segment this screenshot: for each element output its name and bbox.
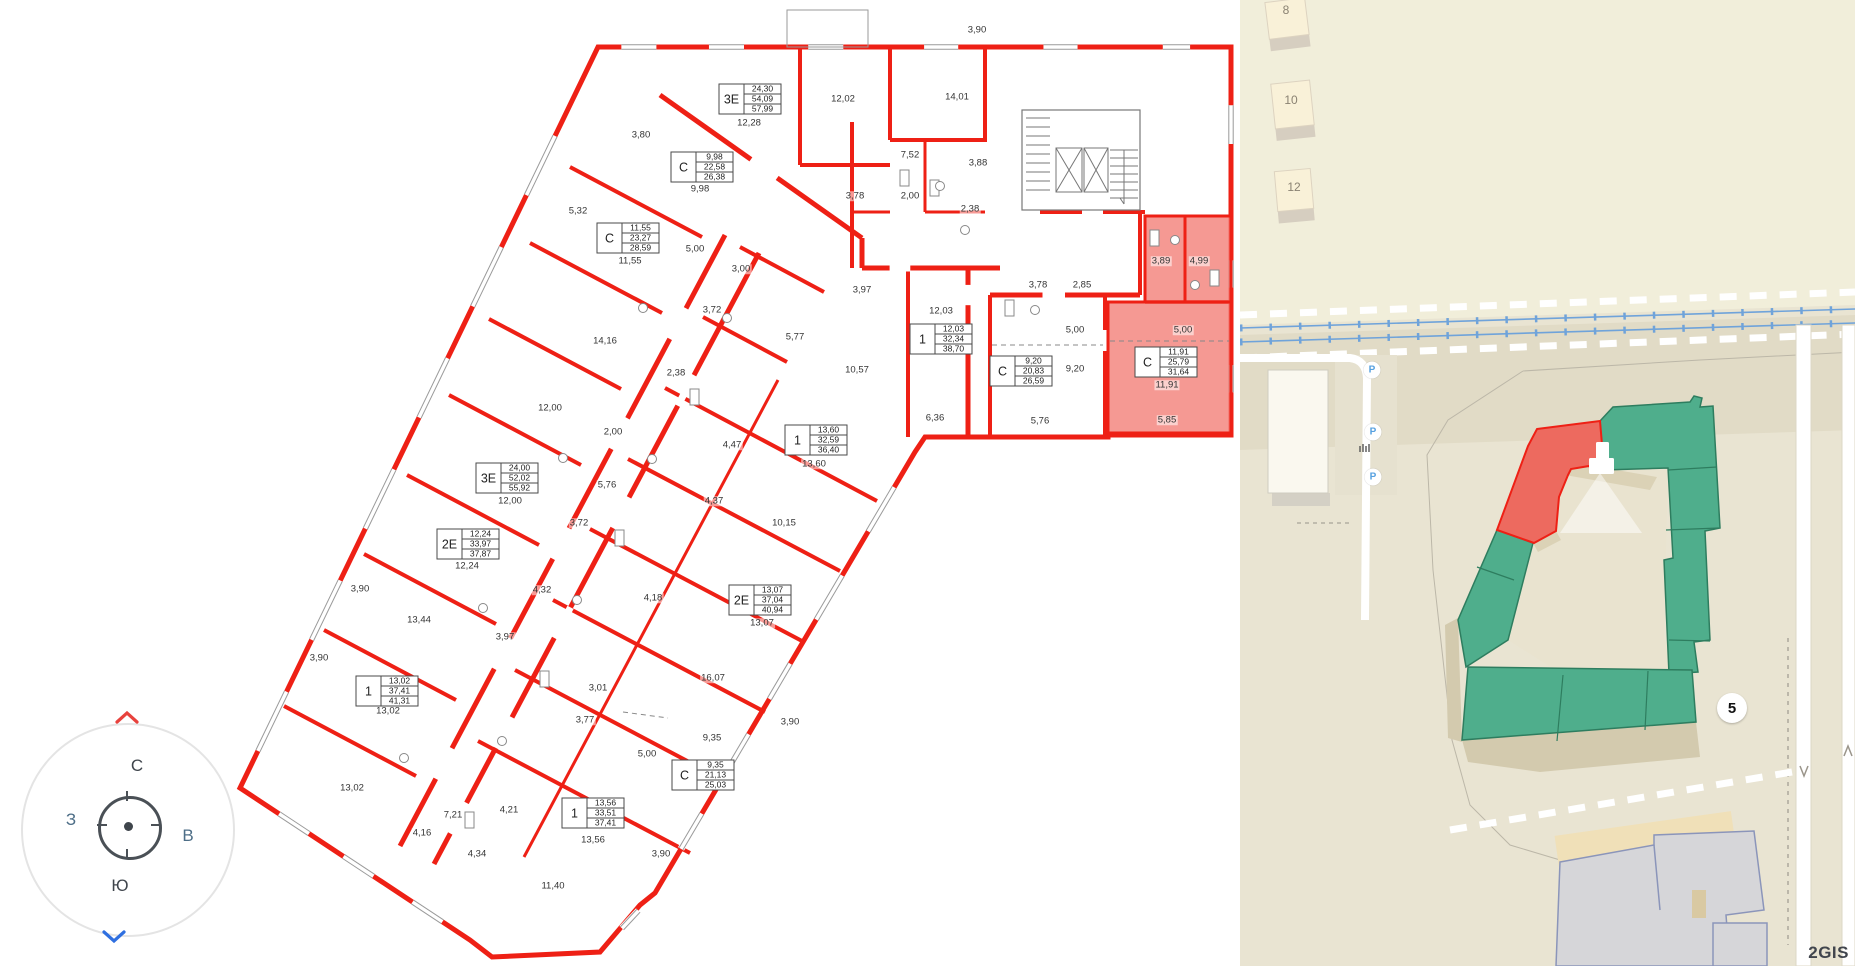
apartment-area-value: 37,41 <box>588 819 624 828</box>
apartment-area-value: 26,59 <box>1016 377 1052 386</box>
apartment-area-value: 31,64 <box>1161 368 1197 377</box>
compass-label-east: В <box>182 826 193 846</box>
compass-label-north: С <box>131 756 143 776</box>
room-dimension-label: 6,36 <box>925 413 946 423</box>
apartment-area-value: 40,94 <box>755 606 791 615</box>
room-dimension-label: 3,77 <box>575 715 596 725</box>
room-dimension-label: 13,56 <box>580 835 606 845</box>
room-dimension-label: 3,00 <box>731 264 752 274</box>
apartment-spec-box[interactable]: 3Е24,3054,0957,99 <box>719 84 782 115</box>
room-dimension-label: 4,32 <box>532 585 553 595</box>
apartment-type: С <box>672 153 697 182</box>
room-dimension-label: 3,89 <box>1151 256 1172 266</box>
room-dimension-label: 3,88 <box>968 158 989 168</box>
apartment-spec-box[interactable]: С9,3521,1325,03 <box>672 760 735 791</box>
apartment-areas: 9,3521,1325,03 <box>698 761 734 790</box>
room-dimension-label: 5,00 <box>1173 325 1194 335</box>
room-dimension-label: 13,60 <box>801 459 827 469</box>
room-dimension-label: 3,80 <box>631 130 652 140</box>
compass-label-west: З <box>66 810 76 830</box>
apartment-type: С <box>673 761 698 790</box>
room-dimension-label: 3,78 <box>845 191 866 201</box>
room-dimension-label: 4,99 <box>1189 256 1210 266</box>
room-dimension-label: 9,35 <box>702 733 723 743</box>
room-dimension-label: 5,76 <box>1030 416 1051 426</box>
apartment-spec-box[interactable]: 113,0237,4141,31 <box>356 676 419 707</box>
compass-tick-south <box>126 849 128 859</box>
apartment-area-value: 36,40 <box>811 446 847 455</box>
apartment-areas: 24,3054,0957,99 <box>745 85 781 114</box>
room-dimension-label: 13,02 <box>339 783 365 793</box>
apartment-type: 1 <box>563 799 588 828</box>
apartment-spec-box[interactable]: С11,5523,2728,59 <box>597 223 660 254</box>
apartment-areas: 9,9822,5826,38 <box>697 153 733 182</box>
highlighted-apartment-region[interactable] <box>1108 216 1231 433</box>
room-dimension-label: 12,28 <box>736 118 762 128</box>
room-dimension-label: 4,37 <box>704 496 725 506</box>
apartment-areas: 13,0737,0440,94 <box>755 586 791 615</box>
room-dimension-label: 9,20 <box>1065 364 1086 374</box>
apartment-area-value: 38,70 <box>936 345 972 354</box>
apartment-spec-box-highlighted[interactable]: С11,9125,7931,64 <box>1135 347 1198 378</box>
room-dimension-label: 13,07 <box>749 618 775 628</box>
apartment-area-value: 55,92 <box>502 484 538 493</box>
room-dimension-label: 5,76 <box>597 480 618 490</box>
map-building-number: 12 <box>1287 180 1300 194</box>
apartment-areas: 24,0052,0255,92 <box>502 464 538 493</box>
room-dimension-label: 5,00 <box>1065 325 1086 335</box>
room-dimension-label: 16,07 <box>700 673 726 683</box>
room-dimension-label: 14,16 <box>592 336 618 346</box>
apartment-areas: 13,6032,5936,40 <box>811 426 847 455</box>
apartment-type: 1 <box>786 426 811 455</box>
apartment-areas: 12,2433,9737,87 <box>463 530 499 559</box>
apartment-type: С <box>991 357 1016 386</box>
room-dimension-label: 5,77 <box>785 332 806 342</box>
apartment-type: 3Е <box>477 464 502 493</box>
room-dimension-label: 3,90 <box>967 25 988 35</box>
room-dimension-label: 12,00 <box>497 496 523 506</box>
building-number-badge[interactable]: 5 <box>1717 693 1747 723</box>
apartment-type: 1 <box>357 677 382 706</box>
room-dimension-label: 3,72 <box>702 305 723 315</box>
compass-tick-north <box>126 791 128 801</box>
map-building-number: 10 <box>1284 93 1297 107</box>
compass-rose: С Ю З В <box>21 723 235 937</box>
room-dimension-label: 11,40 <box>540 881 565 891</box>
parking-icon: Р <box>1365 424 1382 441</box>
room-dimension-label: 11,55 <box>617 256 642 266</box>
apartment-type: С <box>1136 348 1161 377</box>
map-drawing <box>1240 0 1855 966</box>
apartment-areas: 11,5523,2728,59 <box>623 224 659 253</box>
apartment-area-value: 41,31 <box>382 697 418 706</box>
room-dimension-label: 3,90 <box>780 717 801 727</box>
room-dimension-label: 12,00 <box>537 403 563 413</box>
floorplan-viewer: 3,9012,2812,0214,013,807,523,889,983,782… <box>0 0 1855 966</box>
room-dimension-label: 14,01 <box>944 92 970 102</box>
room-dimension-label: 3,90 <box>309 653 330 663</box>
room-dimension-label: 10,57 <box>844 365 870 375</box>
room-dimension-label: 4,47 <box>722 440 743 450</box>
apartment-area-value: 28,59 <box>623 244 659 253</box>
room-dimension-label: 3,90 <box>651 849 672 859</box>
2gis-logo[interactable]: 2GIS <box>1808 943 1849 963</box>
compass-label-south: Ю <box>111 876 128 896</box>
apartment-areas: 13,5633,5137,41 <box>588 799 624 828</box>
apartment-type: 2Е <box>730 586 755 615</box>
room-dimension-label: 9,98 <box>690 184 711 194</box>
room-dimension-label: 2,38 <box>960 204 981 214</box>
apartment-area-value: 25,03 <box>698 781 734 790</box>
apartment-area-value: 37,87 <box>463 550 499 559</box>
room-dimension-label: 2,00 <box>603 427 624 437</box>
apartment-type: 1 <box>911 325 936 354</box>
room-dimension-label: 3,97 <box>852 285 873 295</box>
room-dimension-label: 4,16 <box>412 828 433 838</box>
room-dimension-label: 3,72 <box>569 518 590 528</box>
room-dimension-label: 5,00 <box>685 244 706 254</box>
room-dimension-label: 4,18 <box>643 593 664 603</box>
room-dimension-label: 12,24 <box>454 561 480 571</box>
compass-north-arrow-icon[interactable] <box>114 710 140 724</box>
apartment-spec-box[interactable]: С9,9822,5826,38 <box>671 152 734 183</box>
apartment-areas: 9,2020,8326,59 <box>1016 357 1052 386</box>
map-building-number: 8 <box>1283 3 1290 17</box>
apartment-type: 3Е <box>720 85 745 114</box>
room-dimension-label: 2,85 <box>1072 280 1093 290</box>
apartment-type: С <box>598 224 623 253</box>
map-panel[interactable]: 81012РРР5 2GIS <box>1240 0 1855 966</box>
apartment-areas: 13,0237,4141,31 <box>382 677 418 706</box>
apartment-spec-box[interactable]: 2Е12,2433,9737,87 <box>437 529 500 560</box>
room-dimension-label: 2,00 <box>900 191 921 201</box>
room-dimension-label: 13,02 <box>375 706 401 716</box>
apartment-area-value: 26,38 <box>697 173 733 182</box>
room-dimension-label: 5,32 <box>568 206 589 216</box>
room-dimension-label: 4,34 <box>467 849 488 859</box>
room-dimension-label: 7,52 <box>900 150 921 160</box>
apartment-spec-box[interactable]: 112,0332,3438,70 <box>910 324 973 355</box>
apartment-spec-box[interactable]: 3Е24,0052,0255,92 <box>476 463 539 494</box>
room-dimension-label: 5,85 <box>1157 415 1178 425</box>
apartment-areas: 12,0332,3438,70 <box>936 325 972 354</box>
room-dimension-label: 2,38 <box>666 368 687 378</box>
parking-icon: Р <box>1364 362 1381 379</box>
apartment-spec-box[interactable]: С9,2020,8326,59 <box>990 356 1053 387</box>
compass-south-arrow-icon[interactable] <box>101 930 127 944</box>
room-dimension-label: 12,02 <box>830 94 856 104</box>
room-dimension-label: 3,97 <box>495 632 516 642</box>
room-dimension-label: 5,00 <box>637 749 658 759</box>
room-dimension-label: 11,91 <box>1154 380 1179 390</box>
room-dimension-label: 4,21 <box>499 805 520 815</box>
compass-tick-east <box>151 824 161 826</box>
room-dimension-label: 3,90 <box>350 584 371 594</box>
room-dimension-label: 3,78 <box>1028 280 1049 290</box>
apartment-spec-box[interactable]: 113,5633,5137,41 <box>562 798 625 829</box>
room-dimension-label: 13,44 <box>406 615 432 625</box>
compass-center-dot <box>124 822 133 831</box>
parking-icon: Р <box>1365 469 1382 486</box>
apartment-type: 2Е <box>438 530 463 559</box>
apartment-area-value: 57,99 <box>745 105 781 114</box>
room-dimension-label: 3,01 <box>588 683 609 693</box>
room-dimension-label: 10,15 <box>771 518 797 528</box>
apartment-spec-box[interactable]: 113,6032,5936,40 <box>785 425 848 456</box>
apartment-areas: 11,9125,7931,64 <box>1161 348 1197 377</box>
floorplan-panel: 3,9012,2812,0214,013,807,523,889,983,782… <box>0 0 1240 966</box>
room-dimension-label: 12,03 <box>928 306 954 316</box>
apartment-spec-box[interactable]: 2Е13,0737,0440,94 <box>729 585 792 616</box>
compass-tick-west <box>97 824 107 826</box>
room-dimension-label: 7,21 <box>443 810 464 820</box>
